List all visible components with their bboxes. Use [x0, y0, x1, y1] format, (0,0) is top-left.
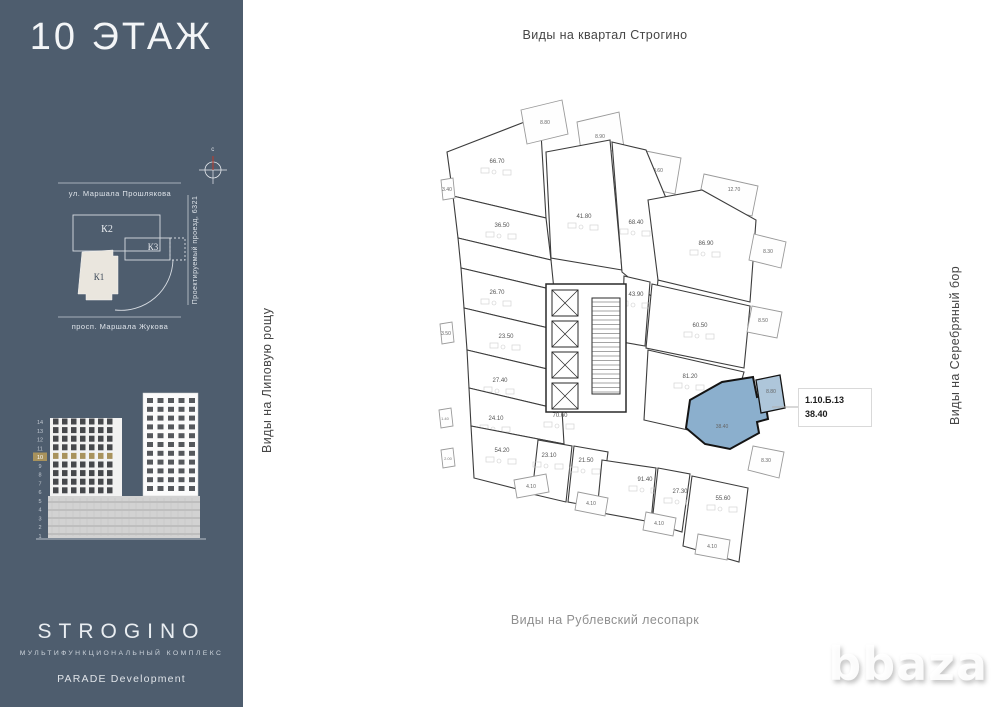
unit-area-label: 60.50 [692, 323, 708, 329]
unit-area-label: 81.20 [682, 374, 698, 380]
unit-area-label: 21.50 [578, 458, 594, 464]
unit-area-label: 86.90 [698, 241, 714, 247]
unit-area-label: 4.10 [586, 501, 596, 507]
unit-area-label: 66.70 [489, 159, 505, 165]
unit-area-label: 26.70 [489, 290, 505, 296]
unit-area-label: 43.90 [628, 292, 644, 298]
unit-area-label: 27.30 [672, 489, 688, 495]
unit-area-label: 2.00 [444, 456, 453, 461]
unit-area-label: 1.40 [441, 416, 450, 421]
unit-area-label: 41.80 [576, 214, 592, 220]
unit-callout: 1.10.Б.13 38.40 [798, 388, 872, 427]
unit-area-label: 54.20 [494, 448, 510, 454]
unit-area-label: 3.40 [442, 187, 452, 193]
callout-unit-id: 1.10.Б.13 [805, 394, 865, 408]
unit-area-label: 4.10 [707, 544, 717, 550]
unit-area-label: 3.50 [441, 331, 451, 337]
unit-area-label: 68.40 [628, 220, 644, 226]
unit-area-label: 55.60 [715, 496, 731, 502]
unit-area-label: 8.50 [758, 318, 768, 324]
unit-area-label: 70.60 [552, 413, 568, 419]
unit-area-label: 8.30 [763, 249, 773, 255]
floor-plan-svg: 66.7036.5026.7023.5027.4024.1054.208.808… [0, 0, 1000, 707]
unit-area-label: 23.10 [541, 453, 557, 459]
unit-area-label: 8.30 [761, 458, 771, 464]
watermark: bbaza [828, 637, 988, 691]
unit-area-label: 8.80 [540, 120, 550, 126]
unit-area-label: 36.50 [494, 223, 510, 229]
unit-area-label: 4.10 [654, 521, 664, 527]
unit-area-label: 4.10 [526, 484, 536, 490]
unit-area-label: 38.40 [716, 424, 729, 430]
unit-area-label: 27.40 [492, 378, 508, 384]
unit-polygon [546, 140, 622, 270]
unit-area-label: 24.10 [488, 416, 504, 422]
unit-area-label: 12.70 [728, 187, 741, 193]
unit-area-label: 91.40 [637, 477, 653, 483]
unit-area-label: 8.90 [595, 134, 605, 140]
unit-area-label: 23.50 [498, 334, 514, 340]
callout-area: 38.40 [805, 408, 865, 422]
unit-area-label: 8.80 [766, 389, 776, 395]
elevator-core [546, 284, 626, 412]
